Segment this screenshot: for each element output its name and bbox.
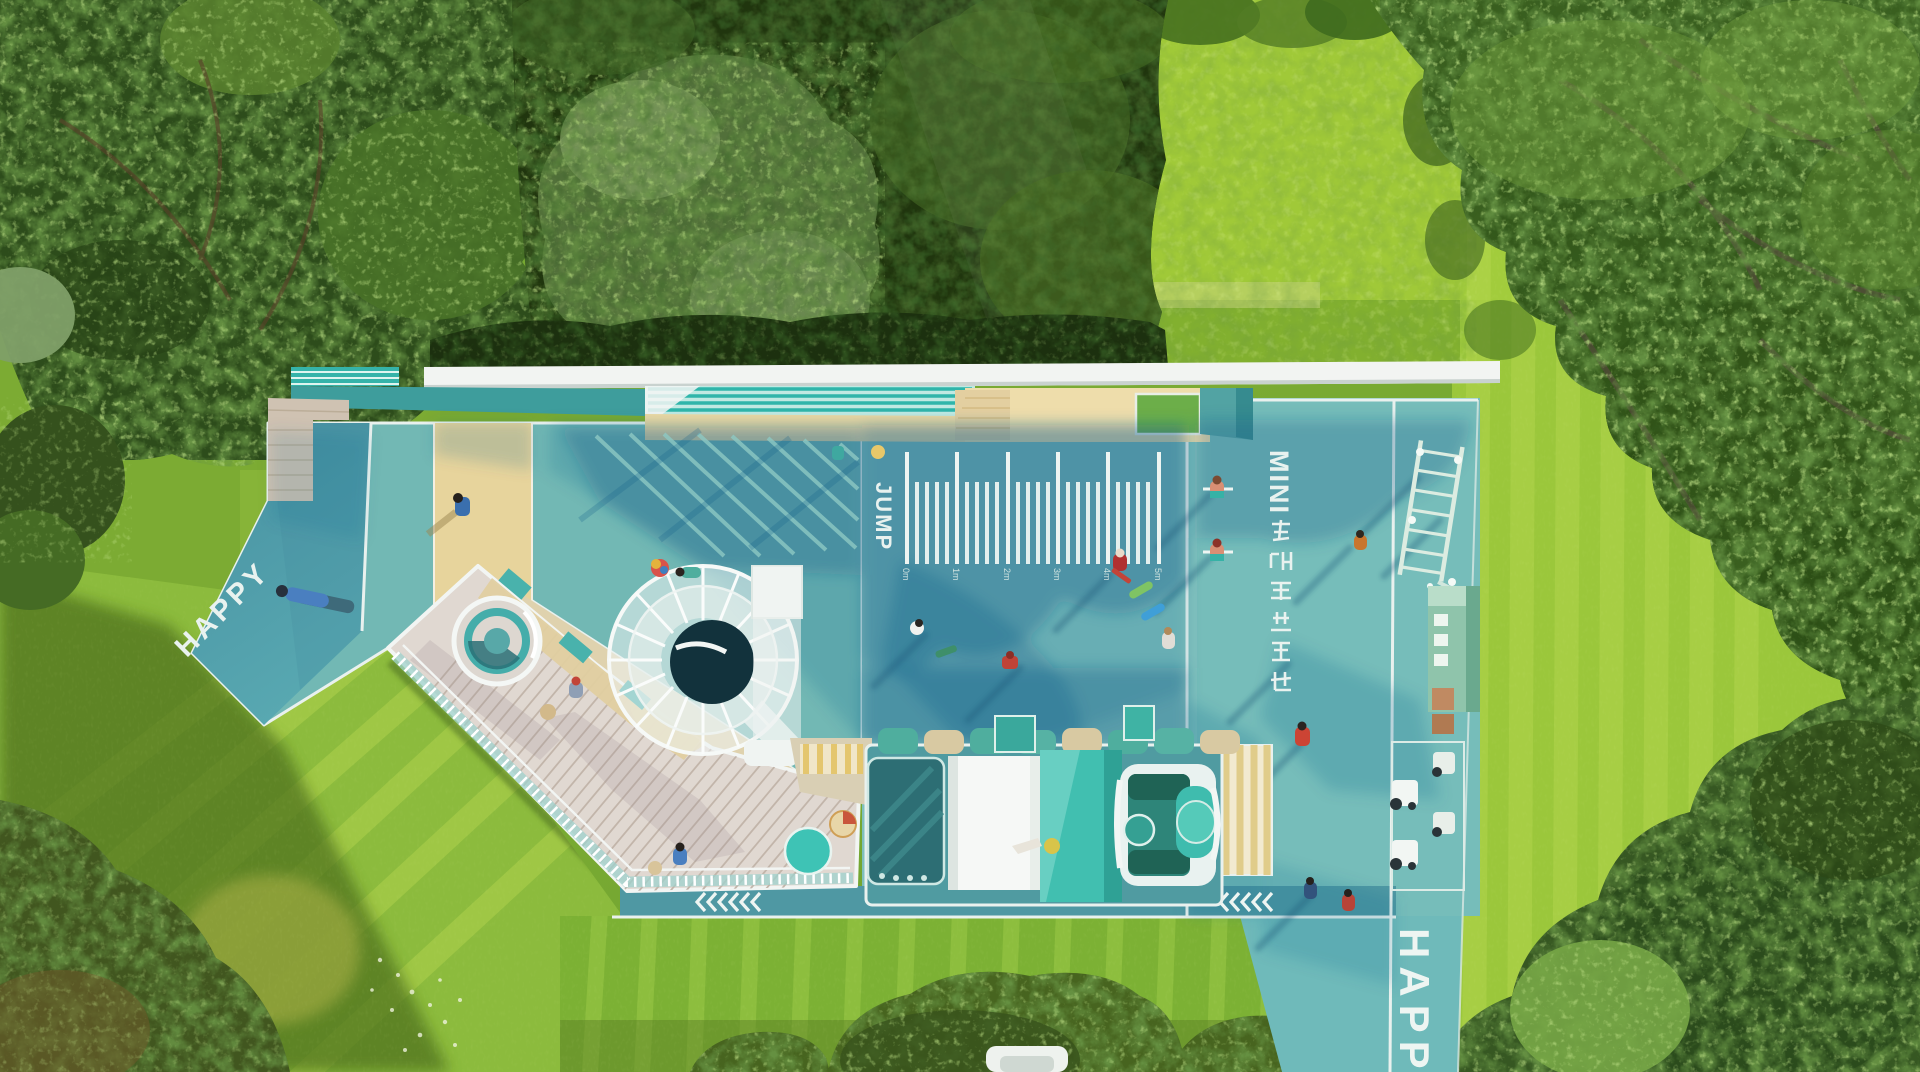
- svg-text:JUMP: JUMP: [871, 482, 896, 551]
- svg-text:MINI: MINI: [1264, 450, 1294, 515]
- svg-text:1m: 1m: [951, 568, 961, 581]
- svg-text:4m: 4m: [1102, 568, 1112, 581]
- svg-text:5m: 5m: [1153, 568, 1163, 581]
- svg-text:2m: 2m: [1002, 568, 1012, 581]
- svg-text:3m: 3m: [1052, 568, 1062, 581]
- svg-text:HAPPY: HAPPY: [1391, 928, 1438, 1072]
- svg-text:0m: 0m: [901, 568, 911, 581]
